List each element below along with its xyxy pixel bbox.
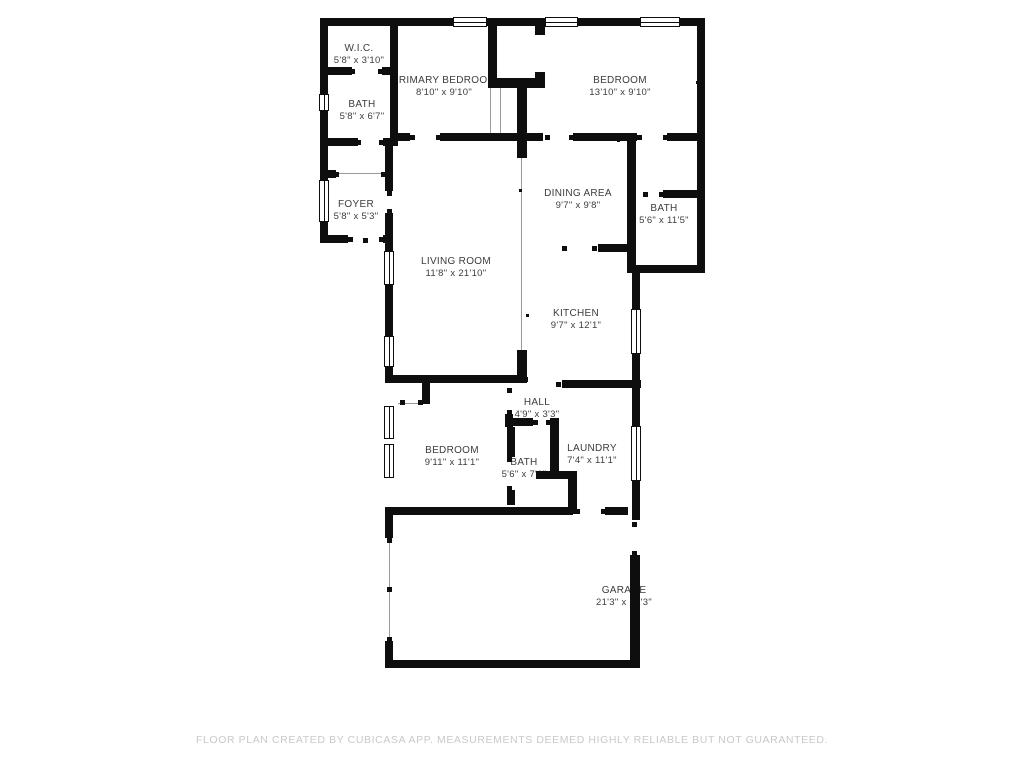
wall [632,480,640,520]
room-dimensions: 9'7" x 12'1" [551,320,601,332]
window-mullion [641,22,679,23]
wall [550,418,559,477]
window-mullion [389,252,390,284]
room-label-foyer: FOYER5'8" x 5'3" [334,199,379,223]
window [631,426,641,481]
marker-dot [519,189,522,192]
door-jamb-tick [379,140,384,145]
window-mullion [454,22,486,23]
wall [382,67,398,75]
window [384,251,394,285]
room-dimensions: 5'6" x 11'5" [639,215,689,227]
window [319,180,329,222]
door-jamb-tick [569,135,574,140]
room-name: BEDROOM [425,445,480,457]
wall [390,18,398,146]
room-label-bedroom-bottom: BEDROOM9'11" x 11'1" [425,445,480,469]
opening-line [336,173,385,174]
door-jamb-tick [601,509,606,514]
wall [627,133,636,273]
door-jamb-tick [556,382,561,387]
wall [598,244,636,252]
wall [320,18,453,26]
wall [320,138,358,146]
window-mullion [636,427,637,480]
room-dimensions: 5'8" x 3'10" [334,55,384,67]
door-jamb-tick [545,135,550,140]
wall [385,138,393,191]
footer-disclaimer: FLOOR PLAN CREATED BY CUBICASA APP. MEAS… [0,734,1024,746]
marker-dot [617,139,620,142]
door-jamb-tick [379,237,384,242]
window [384,406,394,439]
door-jamb-tick [523,377,528,382]
door-jamb-tick [562,246,567,251]
window-mullion [389,445,390,477]
room-name: LAUNDRY [567,443,617,455]
room-label-kitchen: KITCHEN9'7" x 12'1" [551,308,601,332]
room-name: BEDROOM [589,75,651,87]
room-label-bath-right: BATH5'6" x 11'5" [639,203,689,227]
window-mullion [636,310,637,353]
window [640,17,680,27]
marker-dot [696,81,699,84]
door-jamb-tick [348,237,353,242]
wall [507,490,515,505]
wall [320,67,352,75]
door-jamb-tick [508,660,513,665]
door-jamb-tick [410,135,415,140]
window [319,94,329,111]
door-jamb-tick [663,135,668,140]
window-mullion [389,337,390,366]
wall [605,507,628,515]
door-jamb-tick [637,135,642,140]
room-label-living-room: LIVING ROOM11'8" x 21'10" [421,256,491,280]
door-jamb-tick [507,410,512,415]
door-jamb-tick [381,172,386,177]
wall [422,383,430,404]
window-mullion [324,95,325,110]
door-jamb-tick [507,457,512,462]
door-jamb-tick [334,172,339,177]
door-jamb-tick [387,538,392,543]
wall [667,133,697,141]
room-dimensions: 9'11" x 11'1" [425,457,480,469]
wall [320,18,328,95]
floor-plan: W.I.C.5'8" x 3'10"BATH5'8" x 6'7"PRIMARY… [0,0,1024,768]
room-name: LIVING ROOM [421,256,491,268]
wall [632,388,640,427]
room-dimensions: 5'8" x 6'7" [340,111,385,123]
room-name: FOYER [334,199,379,211]
room-label-wic: W.I.C.5'8" x 3'10" [334,43,384,67]
room-name: BATH [340,99,385,111]
room-dimensions: 11'8" x 21'10" [421,268,491,280]
room-name: KITCHEN [551,308,601,320]
door-jamb-tick [400,400,405,405]
floor-plan-page: W.I.C.5'8" x 3'10"BATH5'8" x 6'7"PRIMARY… [0,0,1024,768]
door-jamb-tick [363,238,368,243]
wall [385,507,573,515]
door-jamb-tick [378,69,383,74]
wall [536,471,577,479]
window [384,444,394,478]
room-label-bath-top-left: BATH5'8" x 6'7" [340,99,385,123]
door-jamb-tick [575,509,580,514]
wall [440,133,543,141]
room-name: W.I.C. [334,43,384,55]
door-jamb-tick [387,637,392,642]
wall [562,380,641,388]
room-label-garage: GARAGE21'3" x 12'3" [596,585,652,609]
wall [633,265,703,273]
door-jamb-tick [387,587,392,592]
door-jamb-tick [418,400,423,405]
room-dimensions: 7'4" x 11'1" [567,455,617,467]
wall [517,88,527,158]
wall [505,418,533,426]
window-mullion [324,181,325,221]
wall [392,133,410,141]
room-label-primary-bedroom: PRIMARY BEDROOM8'10" x 9'10" [392,75,496,99]
window-mullion [389,407,390,438]
opening-line [500,88,501,133]
room-dimensions: 5'8" x 5'3" [334,211,379,223]
wall [663,190,697,198]
door-jamb-tick [632,522,637,527]
door-jamb-tick [643,192,648,197]
window [384,336,394,367]
room-dimensions: 21'3" x 12'3" [596,597,652,609]
room-label-laundry: LAUNDRY7'4" x 11'1" [567,443,617,467]
door-jamb-tick [350,69,355,74]
door-jamb-tick [436,135,441,140]
door-jamb-tick [356,140,361,145]
wall [535,72,545,88]
door-jamb-tick [387,209,392,214]
wall [383,235,393,243]
room-dimensions: 8'10" x 9'10" [392,87,496,99]
wall [385,284,393,337]
room-name: DINING AREA [544,188,612,200]
room-dimensions: 13'10" x 9'10" [589,87,651,99]
wall [385,375,523,383]
room-name: HALL [515,397,560,409]
wall [385,507,393,538]
door-jamb-tick [507,388,512,393]
wall [535,18,545,35]
opening-line [521,158,522,350]
wall [630,555,640,668]
window-mullion [546,22,577,23]
door-jamb-tick [546,420,551,425]
door-jamb-tick [507,486,512,491]
room-name: GARAGE [596,585,652,597]
marker-dot [450,379,453,382]
door-jamb-tick [592,246,597,251]
room-name: PRIMARY BEDROOM [392,75,496,87]
door-jamb-tick [387,191,392,196]
door-jamb-tick [659,192,664,197]
door-jamb-tick [533,420,538,425]
window [453,17,487,27]
room-dimensions: 9'7" x 9'8" [544,200,612,212]
room-label-dining-area: DINING AREA9'7" x 9'8" [544,188,612,212]
wall [632,273,640,310]
room-label-bedroom-top: BEDROOM13'10" x 9'10" [589,75,651,99]
door-jamb-tick [632,551,637,556]
room-name: BATH [639,203,689,215]
wall [697,18,705,273]
window [545,17,578,27]
wall [578,18,640,26]
wall [320,235,348,243]
marker-dot [526,314,529,317]
window [631,309,641,354]
wall [507,427,515,457]
